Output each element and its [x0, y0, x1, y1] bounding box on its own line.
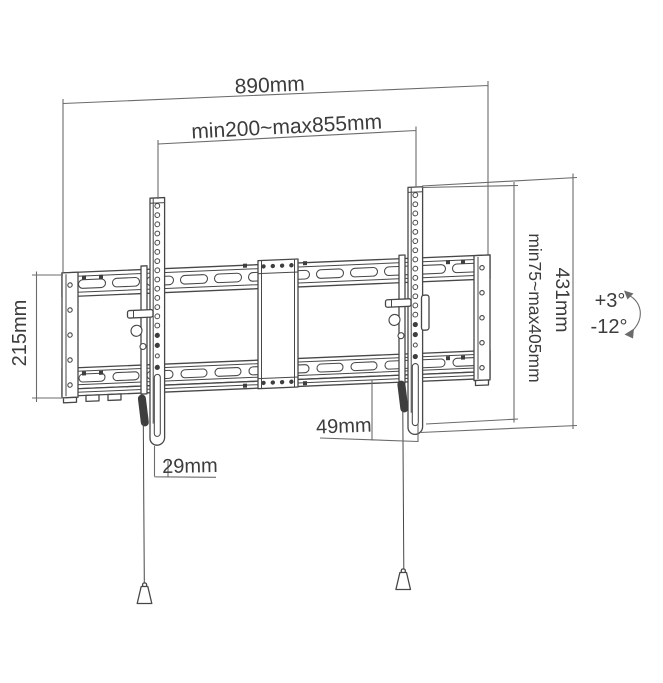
dim-bracket-height: 431mm	[420, 174, 577, 433]
dim-plate-height-label: 215mm	[9, 300, 31, 367]
dim-vesa-height-label: min75~max405mm	[525, 233, 545, 382]
right-end-cap	[474, 255, 490, 386]
right-lock-lever	[397, 381, 408, 413]
tilt-annotation: +3° -12°	[591, 290, 641, 339]
dim-bracket-height-label: 431mm	[551, 267, 573, 332]
tilt-arc-arrow-up-icon	[624, 291, 634, 300]
tilt-up-label: +3°	[595, 290, 626, 312]
diagram-page: 890mm min200~max855mm 215mm min75~max405…	[0, 0, 663, 683]
dim-plate-depth-label: 29mm	[162, 455, 218, 478]
left-end-cap	[62, 272, 78, 403]
dim-arm-bottom-offset-label: 49mm	[316, 415, 372, 439]
left-latch	[128, 310, 154, 351]
tilt-down-label: -12°	[591, 316, 628, 338]
center-plate	[258, 259, 298, 389]
dim-plate-height: 215mm	[9, 272, 66, 403]
left-lock-lever	[138, 395, 149, 427]
dim-overall-width-label: 890mm	[234, 72, 305, 98]
left-cord-pull	[137, 587, 152, 604]
dim-plate-depth: 29mm	[155, 446, 218, 478]
tilt-arc	[627, 295, 641, 333]
dim-overall-width: 890mm	[63, 72, 488, 273]
dim-arm-spread: min200~max855mm	[158, 111, 416, 199]
right-latch-hook	[422, 295, 430, 330]
right-cord-pull	[396, 573, 411, 590]
right-latch	[386, 299, 412, 340]
wall-mount-diagram: 890mm min200~max855mm 215mm min75~max405…	[0, 0, 663, 683]
mount-bracket	[62, 184, 490, 449]
dim-arm-spread-label: min200~max855mm	[191, 111, 383, 144]
